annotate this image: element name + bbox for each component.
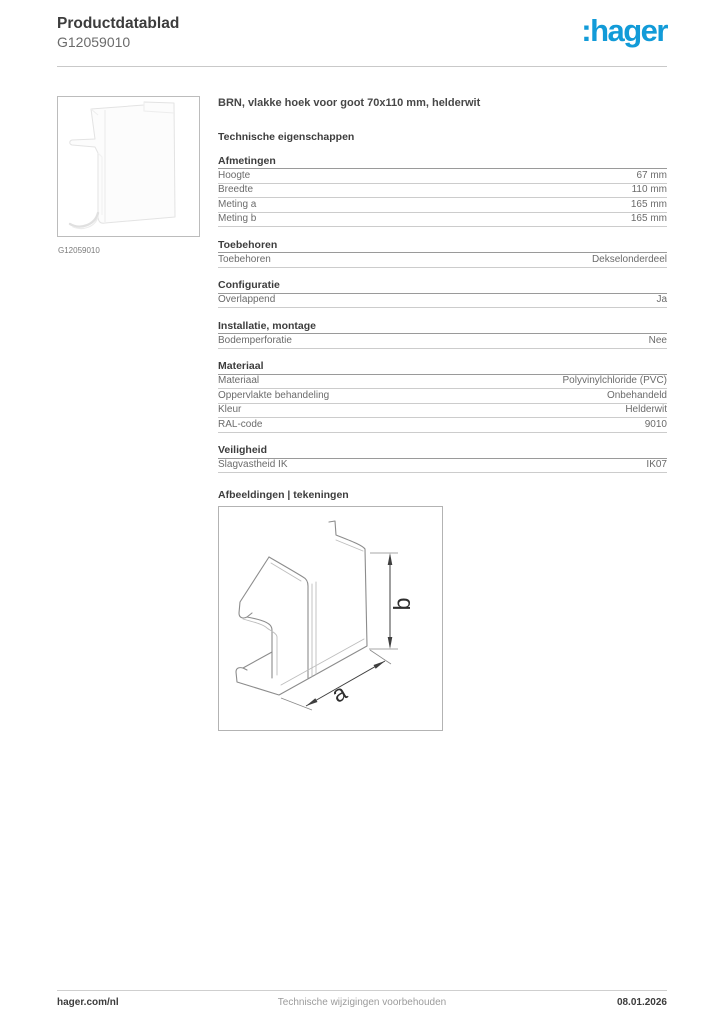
- spec-row: Hoogte67 mm: [218, 169, 667, 184]
- footer-disclaimer: Technische wijzigingen voorbehouden: [210, 997, 515, 1008]
- spec-label: Kleur: [218, 404, 241, 415]
- technical-drawing: b a: [218, 506, 443, 731]
- spec-row: Meting b165 mm: [218, 213, 667, 228]
- spec-label: Meting a: [218, 199, 256, 210]
- spec-label: Slagvastheid IK: [218, 459, 288, 470]
- spec-row: BodemperforatieNee: [218, 334, 667, 349]
- footer-date: 08.01.2026: [515, 997, 668, 1008]
- spec-value: IK07: [646, 459, 667, 470]
- technical-drawing-image: b a: [219, 507, 442, 730]
- spec-value: 9010: [645, 419, 667, 430]
- spec-section-title: Toebehoren: [218, 239, 667, 254]
- header-divider: [57, 66, 667, 67]
- spec-row: RAL-code9010: [218, 418, 667, 433]
- spec-row: MateriaalPolyvinylchloride (PVC): [218, 375, 667, 390]
- spec-label: Meting b: [218, 213, 256, 224]
- spec-section: Installatie, montage BodemperforatieNee: [218, 320, 667, 349]
- spec-section-title: Configuratie: [218, 279, 667, 294]
- spec-value: 165 mm: [631, 213, 667, 224]
- spec-label: Materiaal: [218, 375, 259, 386]
- product-photo-image: [58, 97, 199, 236]
- spec-section-title: Installatie, montage: [218, 320, 667, 335]
- spec-value: Helderwit: [625, 404, 667, 415]
- document-title: Productdatablad: [57, 14, 179, 33]
- spec-value: 67 mm: [636, 170, 667, 181]
- spec-section: Veiligheid Slagvastheid IKIK07: [218, 444, 667, 473]
- spec-label: Overlappend: [218, 294, 275, 305]
- header-titles: Productdatablad G12059010: [57, 14, 179, 51]
- product-photo-caption: G12059010: [58, 246, 100, 255]
- details-column: BRN, vlakke hoek voor goot 70x110 mm, he…: [218, 97, 667, 731]
- product-photo: [57, 96, 200, 237]
- spec-section-rows: Slagvastheid IKIK07: [218, 459, 667, 474]
- document-header: Productdatablad G12059010 :hager: [57, 14, 667, 51]
- spec-label: Breedte: [218, 184, 253, 195]
- spec-value: 165 mm: [631, 199, 667, 210]
- spec-section-rows: Hoogte67 mmBreedte110 mmMeting a165 mmMe…: [218, 169, 667, 227]
- spec-value: Polyvinylchloride (PVC): [563, 375, 667, 386]
- spec-row: Slagvastheid IKIK07: [218, 459, 667, 474]
- spec-row: OverlappendJa: [218, 294, 667, 309]
- spec-section-rows: MateriaalPolyvinylchloride (PVC)Oppervla…: [218, 375, 667, 433]
- spec-section-rows: OverlappendJa: [218, 294, 667, 309]
- spec-value: Nee: [649, 335, 667, 346]
- dimension-b: b: [369, 553, 415, 649]
- spec-section-title: Veiligheid: [218, 444, 667, 459]
- spec-section-title: Afmetingen: [218, 155, 667, 170]
- dimension-a: a: [281, 650, 391, 710]
- spec-section-title: Materiaal: [218, 360, 667, 375]
- spec-section: Afmetingen Hoogte67 mmBreedte110 mmMetin…: [218, 155, 667, 228]
- document-reference: G12059010: [57, 33, 179, 51]
- tech-properties-heading: Technische eigenschappen: [218, 131, 667, 143]
- spec-row: Oppervlakte behandelingOnbehandeld: [218, 389, 667, 404]
- footer-website: hager.com/nl: [57, 997, 210, 1008]
- dimension-b-label: b: [389, 598, 415, 611]
- spec-label: Toebehoren: [218, 254, 271, 265]
- spec-label: Bodemperforatie: [218, 335, 292, 346]
- footer-divider: [57, 990, 667, 991]
- document-footer: hager.com/nl Technische wijzigingen voor…: [57, 997, 667, 1008]
- spec-row: ToebehorenDekselonderdeel: [218, 253, 667, 268]
- spec-value: Dekselonderdeel: [592, 254, 667, 265]
- spec-row: KleurHelderwit: [218, 404, 667, 419]
- spec-section: Configuratie OverlappendJa: [218, 279, 667, 308]
- spec-section-rows: BodemperforatieNee: [218, 334, 667, 349]
- spec-label: RAL-code: [218, 419, 262, 430]
- spec-value: Onbehandeld: [607, 390, 667, 401]
- hager-logo: :hager: [581, 16, 667, 46]
- spec-section: Materiaal MateriaalPolyvinylchloride (PV…: [218, 360, 667, 433]
- product-title: BRN, vlakke hoek voor goot 70x110 mm, he…: [218, 97, 667, 110]
- spec-value: Ja: [656, 294, 667, 305]
- spec-section-rows: ToebehorenDekselonderdeel: [218, 253, 667, 268]
- content-area: G12059010 BRN, vlakke hoek voor goot 70x…: [57, 95, 667, 731]
- datasheet-page: Productdatablad G12059010 :hager G120590…: [0, 0, 724, 1024]
- drawings-heading: Afbeeldingen | tekeningen: [218, 489, 667, 501]
- spec-section: Toebehoren ToebehorenDekselonderdeel: [218, 239, 667, 268]
- spec-value: 110 mm: [632, 184, 667, 195]
- spec-label: Oppervlakte behandeling: [218, 390, 329, 401]
- spec-row: Breedte110 mm: [218, 184, 667, 199]
- spec-row: Meting a165 mm: [218, 198, 667, 213]
- specs-sections: Afmetingen Hoogte67 mmBreedte110 mmMetin…: [218, 155, 667, 474]
- spec-label: Hoogte: [218, 170, 250, 181]
